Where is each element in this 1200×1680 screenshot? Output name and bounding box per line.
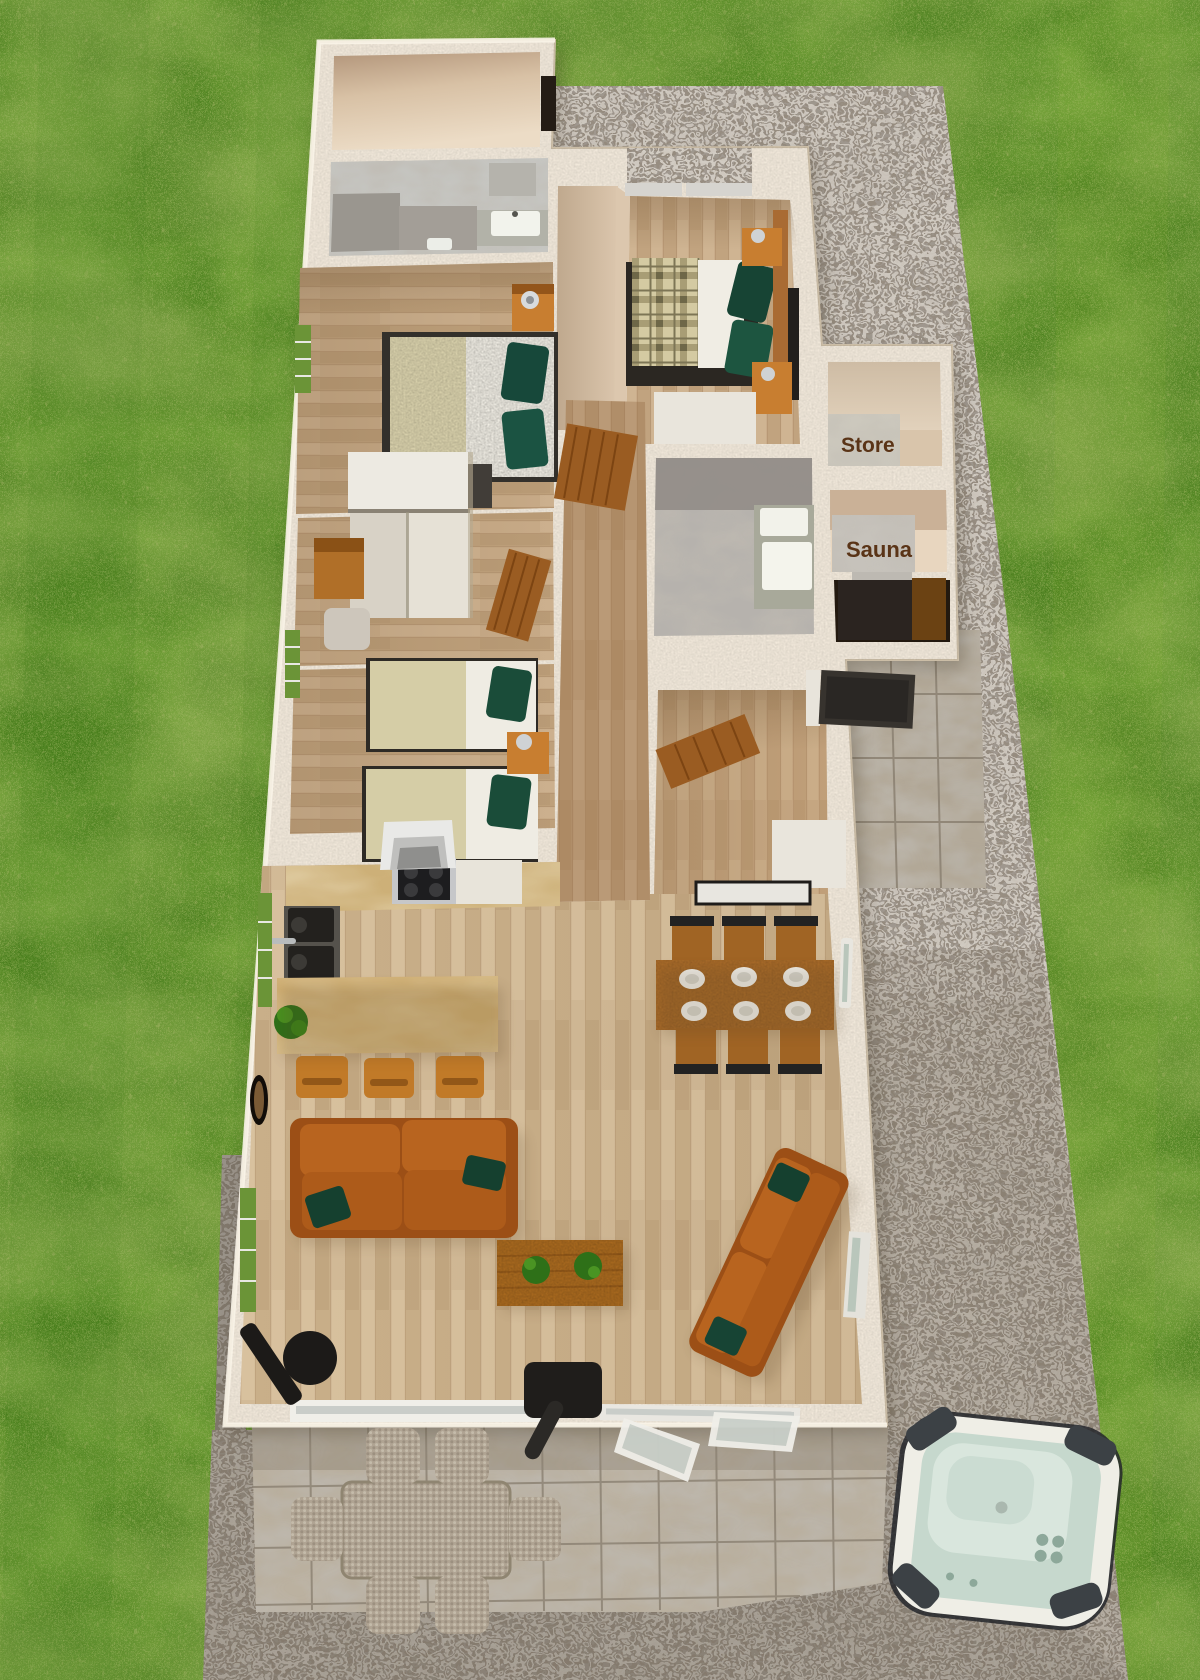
svg-text:Sauna: Sauna [846,537,913,562]
svg-text:Store: Store [841,434,895,457]
